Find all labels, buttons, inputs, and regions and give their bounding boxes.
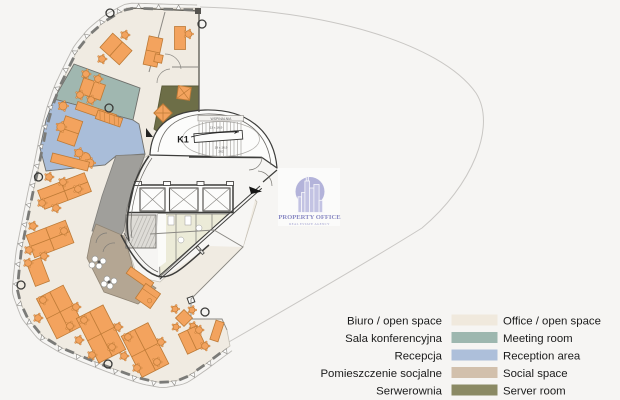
svg-text:Meeting room: Meeting room <box>503 333 573 345</box>
svg-text:Server room: Server room <box>503 386 566 398</box>
svg-text:Biuro / open space: Biuro / open space <box>347 316 442 328</box>
svg-text:Social space: Social space <box>503 368 568 380</box>
svg-text:Recepcja: Recepcja <box>395 351 443 363</box>
svg-text:PROPERTY OFFICE: PROPERTY OFFICE <box>278 214 341 221</box>
svg-text:262: 262 <box>218 150 223 154</box>
svg-text:Office / open space: Office / open space <box>503 316 601 328</box>
svg-text:WSPINALNIA: WSPINALNIA <box>211 117 233 121</box>
svg-text:Sala konferencyjna: Sala konferencyjna <box>345 333 443 345</box>
svg-text:REAL ESTATE AGENCY: REAL ESTATE AGENCY <box>289 222 330 226</box>
svg-text:13 x 16,9: 13 x 16,9 <box>210 126 223 130</box>
svg-text:Reception area: Reception area <box>503 351 581 363</box>
svg-text:Serwerownia: Serwerownia <box>376 386 443 398</box>
svg-text:K1: K1 <box>177 135 189 145</box>
svg-text:Pomieszczenie socjalne: Pomieszczenie socjalne <box>320 368 442 380</box>
